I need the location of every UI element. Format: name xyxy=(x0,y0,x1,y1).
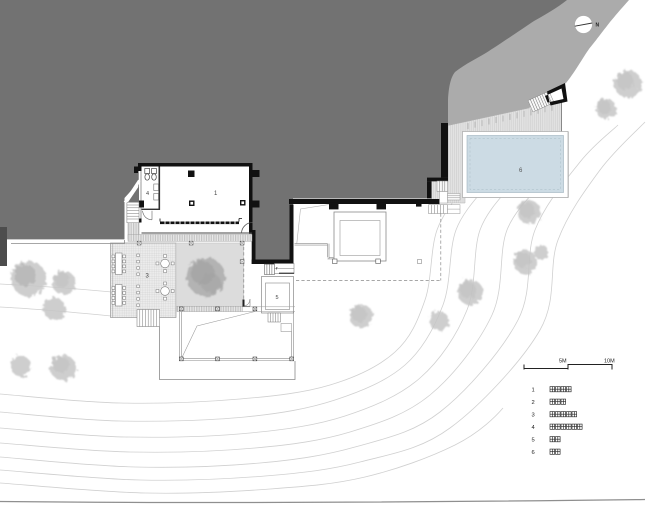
svg-text:2: 2 xyxy=(532,400,535,406)
svg-text:5: 5 xyxy=(532,438,535,444)
svg-text:1: 1 xyxy=(532,388,535,394)
svg-text:5M: 5M xyxy=(559,359,567,365)
svg-text:6: 6 xyxy=(532,450,535,456)
svg-text:10M: 10M xyxy=(604,359,615,365)
svg-text:4: 4 xyxy=(146,191,149,197)
svg-text:3: 3 xyxy=(532,413,535,419)
svg-text:5: 5 xyxy=(276,295,279,301)
svg-text:N: N xyxy=(596,22,600,28)
